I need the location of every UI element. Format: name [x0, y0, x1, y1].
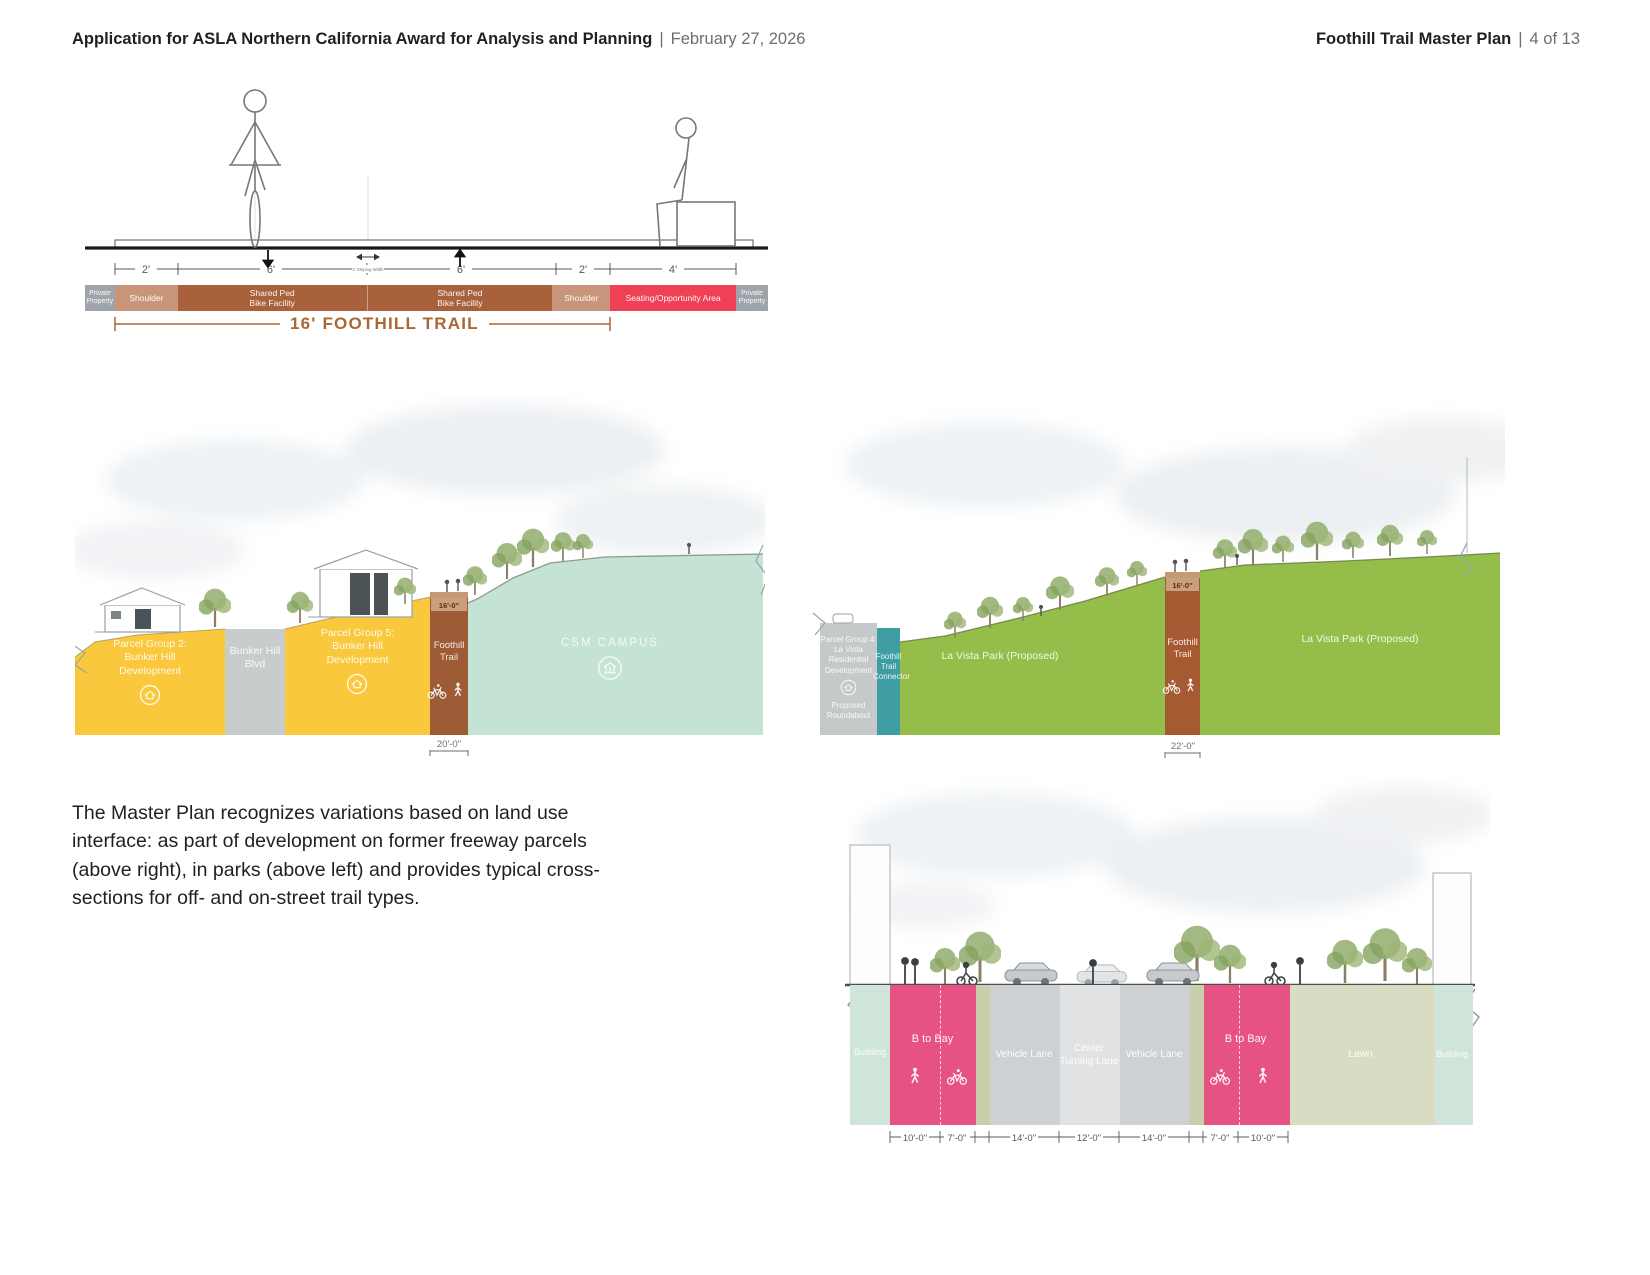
la-vista-section-rendering: Parcel Group 4: La Vista Residential Dev…	[805, 395, 1505, 775]
center-stripe-note: 2' Striping Width	[352, 267, 384, 272]
band-seating-opportunity: Seating/Opportunity Area	[610, 285, 736, 311]
parcel-group-4-label: Parcel Group 4: La Vista Residential Dev…	[818, 635, 879, 676]
header-left: Application for ASLA Northern California…	[72, 30, 805, 49]
dim-6ft-right: 6'	[457, 264, 465, 276]
bike-icon	[946, 1069, 968, 1085]
walk-icon	[1183, 678, 1198, 693]
dim-14ft-right: 14'-0"	[1142, 1133, 1166, 1144]
car-icon	[1077, 965, 1126, 987]
band-shared-ped-bike-left: Shared Ped Bike Facility	[178, 285, 368, 311]
band-btobay-ped-left	[890, 985, 940, 1125]
application-title: Application for ASLA Northern California…	[72, 30, 652, 48]
plan-title: Foothill Trail Master Plan	[1316, 30, 1511, 48]
band-btobay-bike-left	[940, 985, 976, 1125]
band-planting-left	[976, 985, 990, 1125]
home-icon	[840, 679, 857, 696]
la-vista-graphic	[805, 395, 1505, 775]
street-dims: 10'-0" 7'-0" 14'-0" 12'-0" 14'-0" 7'-0" …	[903, 1133, 1275, 1144]
foothill-trail-label: Foothill Trail	[424, 640, 474, 664]
walk-icon	[450, 682, 466, 698]
bike-icon	[1209, 1069, 1231, 1085]
campus-icon	[597, 655, 623, 681]
building-right	[1433, 873, 1471, 985]
trail-bottom-dim: 22'-0"	[1148, 741, 1218, 752]
band-shared-ped-bike-right: Shared Ped Bike Facility	[368, 285, 553, 311]
band-btobay-bike-right	[1204, 985, 1239, 1125]
dim-14ft-left: 14'-0"	[1012, 1133, 1036, 1144]
parcel-group-2-label: Parcel Group 2: Bunker Hill Development	[85, 638, 215, 678]
vehicle-lane-left-label: Vehicle Lane	[989, 1049, 1059, 1062]
trail-deck	[115, 240, 753, 247]
band-shoulder-right: Shoulder	[552, 285, 610, 311]
body-paragraph: The Master Plan recognizes variations ba…	[72, 799, 752, 913]
foothill-trail-total-label: 16' FOOTHILL TRAIL	[280, 314, 489, 334]
trail-width-dim: 16'-0"	[1166, 581, 1199, 590]
band-private-property-left: Private Property	[85, 285, 115, 311]
typical-trail-cross-section: 2' 6' 6' 2' 4' 2' Striping Width	[85, 80, 770, 345]
header-right: Foothill Trail Master Plan|4 of 13	[1316, 30, 1580, 49]
dimension-line: 2' 6' 6' 2' 4'	[115, 262, 736, 276]
building-right-label: Building	[1433, 1049, 1471, 1060]
clouds	[75, 405, 765, 578]
car-icon	[1147, 963, 1199, 986]
trail-cap	[430, 592, 468, 598]
dim-4ft: 4'	[669, 264, 677, 276]
vehicle-lane-right-label: Vehicle Lane	[1119, 1049, 1189, 1062]
dim-10ft-left: 10'-0"	[903, 1133, 927, 1144]
dim-2ft-left: 2'	[142, 264, 150, 276]
header-date: February 27, 2026	[671, 30, 806, 48]
document-page: Application for ASLA Northern California…	[0, 0, 1650, 1275]
dim-12ft-center: 12'-0"	[1077, 1133, 1101, 1144]
dim-7ft-left: 7'-0"	[948, 1133, 967, 1144]
header-divider: |	[659, 30, 663, 48]
band-shoulder-left: Shoulder	[115, 285, 178, 311]
clouds	[855, 787, 1490, 927]
bunker-hill-blvd-label: Bunker Hill Blvd	[223, 645, 287, 672]
foothill-trail-label: Foothill Trail	[1160, 637, 1205, 661]
center-turning-lane-label: Center Turning Lane	[1059, 1043, 1119, 1068]
trail-cap	[1165, 572, 1200, 578]
header-divider-right: |	[1518, 30, 1522, 48]
seated-person-figure	[657, 118, 735, 246]
bunker-hill-section-rendering: Parcel Group 2: Bunker Hill Development …	[75, 395, 765, 767]
band-planting-right	[1190, 985, 1204, 1125]
btobay-left-label: B to Bay	[890, 1033, 975, 1047]
trail-connector-label: Foothill Trail Connector	[873, 652, 904, 683]
walk-icon	[1254, 1067, 1272, 1085]
trail-width-dim: 16'-0"	[430, 601, 468, 610]
car-icon	[833, 614, 853, 623]
dim-7ft-right: 7'-0"	[1211, 1133, 1230, 1144]
building-left	[850, 845, 890, 985]
bunker-hill-graphic	[75, 395, 765, 767]
home-icon	[346, 673, 368, 695]
proposed-roundabout-label: Proposed Roundabout	[818, 701, 879, 721]
clouds	[845, 418, 1505, 543]
parcel-group-5-label: Parcel Group 5: Bunker Hill Development	[295, 627, 420, 667]
la-vista-park-label-right: La Vista Park (Proposed)	[1270, 633, 1450, 646]
btobay-right-label: B to Bay	[1203, 1033, 1288, 1047]
trail-bottom-dim: 20'-0"	[415, 739, 483, 750]
csm-campus-label: CSM CAMPUS	[525, 636, 695, 651]
bike-icon	[427, 684, 447, 699]
page-number: 4 of 13	[1530, 30, 1580, 48]
lawn-label: Lawn	[1288, 1049, 1433, 1062]
home-icon	[139, 684, 161, 706]
dim-10ft-right: 10'-0"	[1251, 1133, 1275, 1144]
la-vista-park-label-left: La Vista Park (Proposed)	[915, 650, 1085, 663]
building-left-label: Building	[850, 1047, 890, 1058]
walk-icon	[906, 1067, 924, 1085]
double-arrow-icon	[357, 255, 379, 260]
house-left	[95, 588, 185, 632]
car-icon	[1005, 963, 1057, 986]
land-use-band-row: Private Property Shoulder Shared Ped Bik…	[85, 285, 768, 311]
band-private-property-right: Private Property	[736, 285, 768, 311]
dim-2ft-right: 2'	[579, 264, 587, 276]
street-cross-section: 10'-0" 7'-0" 14'-0" 12'-0" 14'-0" 7'-0" …	[845, 775, 1490, 1175]
bike-icon	[1162, 680, 1181, 694]
band-btobay-ped-right	[1239, 985, 1290, 1125]
